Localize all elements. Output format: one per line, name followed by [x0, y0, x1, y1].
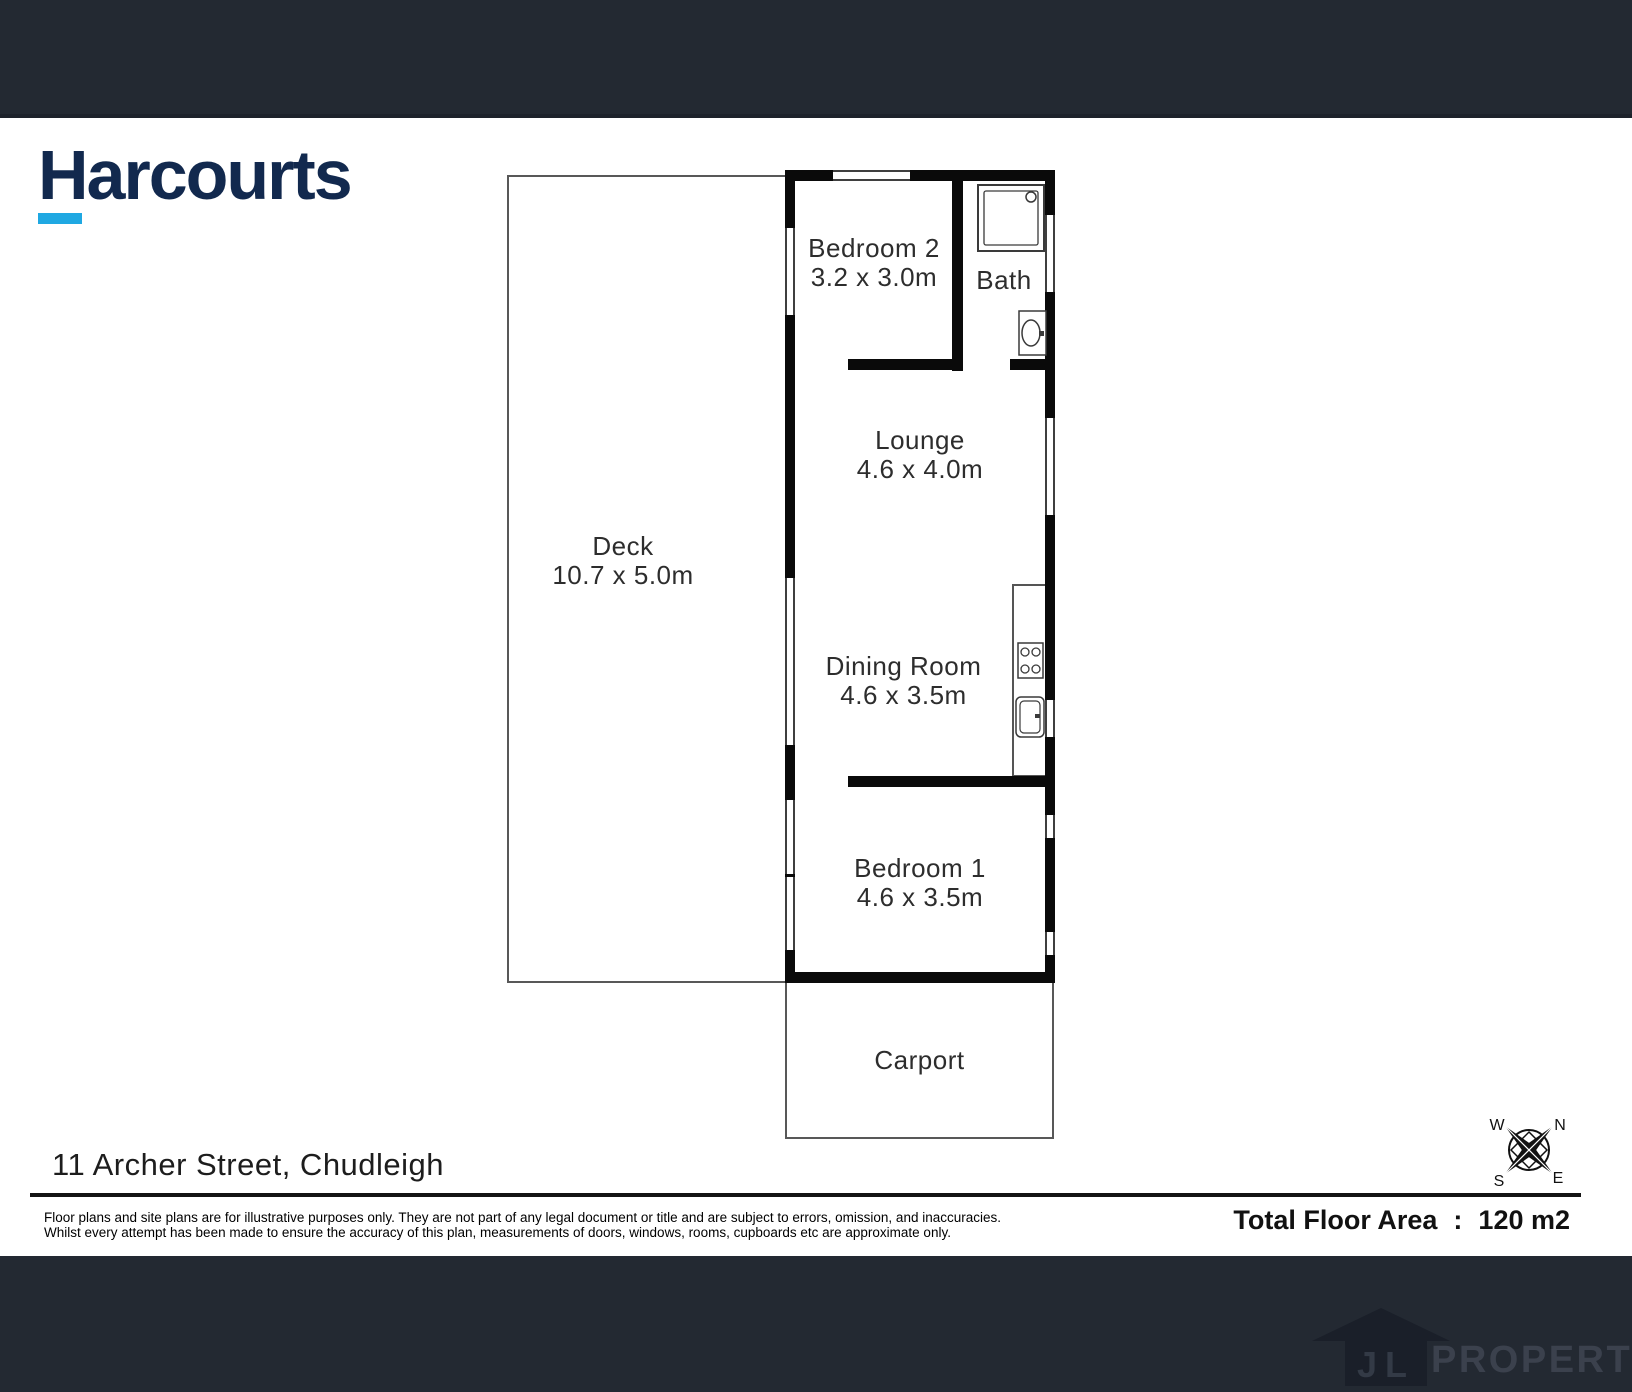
total-floor-area-label: Total Floor Area [1233, 1205, 1437, 1236]
top-band [0, 0, 1632, 118]
window-right-bath [1045, 215, 1055, 292]
room-label-deck: Deck 10.7 x 5.0m [507, 532, 739, 590]
footer-rule [30, 1193, 1581, 1197]
window-top-bedroom2 [833, 170, 910, 181]
window-right-bedroom1-b [1045, 932, 1055, 955]
disclaimer-line-1: Floor plans and site plans are for illus… [44, 1210, 1001, 1225]
disclaimer-text: Floor plans and site plans are for illus… [44, 1210, 1001, 1240]
room-label-lounge: Lounge 4.6 x 4.0m [795, 426, 1045, 484]
harcourts-logo: Harcourts [38, 140, 351, 224]
toilet-icon [1019, 311, 1046, 355]
room-label-carport: Carport [785, 1046, 1054, 1075]
compass-south-label: S [1494, 1173, 1505, 1190]
wall-dining-bedroom1-divider [848, 776, 1055, 787]
room-dims: 10.7 x 5.0m [507, 561, 739, 590]
wall-exterior-bottom [785, 972, 1055, 983]
total-floor-area-value: 120 m2 [1478, 1205, 1570, 1236]
total-floor-area: Total Floor Area : 120 m2 [1233, 1205, 1570, 1236]
window-right-lounge [1045, 418, 1055, 515]
compass-east-label: E [1553, 1170, 1564, 1187]
harcourts-logo-underline [38, 213, 82, 224]
window-right-kitchen [1045, 700, 1055, 737]
room-name: Bedroom 1 [795, 854, 1045, 883]
room-name: Lounge [795, 426, 1045, 455]
bottom-band [0, 1256, 1632, 1392]
wall-bath-bottom [1010, 359, 1055, 370]
compass-west-label: W [1489, 1117, 1505, 1134]
window-left-bedroom1-b [785, 877, 795, 950]
window-left-lounge-door [785, 578, 795, 745]
compass-icon: W N S E [1489, 1117, 1565, 1190]
window-left-bedroom1-a [785, 800, 795, 874]
property-address: 11 Archer Street, Chudleigh [52, 1147, 444, 1183]
room-dims: 4.6 x 3.5m [795, 681, 1012, 710]
room-name: Dining Room [795, 652, 1012, 681]
room-name: Deck [507, 532, 739, 561]
room-dims: 3.2 x 3.0m [795, 263, 953, 292]
window-left-bedroom2 [785, 228, 795, 315]
floorplan-page: Harcourts Bedroom 2 3.2 x 3.0m Bath Loun… [0, 0, 1632, 1392]
wall-bedroom2-right [952, 181, 963, 371]
room-name: Bath [963, 266, 1045, 295]
room-name: Bedroom 2 [795, 234, 953, 263]
room-label-dining: Dining Room 4.6 x 3.5m [795, 652, 1012, 710]
wall-bedroom2-bottom [848, 359, 963, 370]
wall-exterior-top [785, 170, 1055, 181]
room-dims: 4.6 x 4.0m [795, 455, 1045, 484]
room-label-bedroom1: Bedroom 1 4.6 x 3.5m [795, 854, 1045, 912]
window-right-bedroom1-a [1045, 815, 1055, 838]
shower-icon [978, 185, 1044, 251]
room-label-bath: Bath [963, 266, 1045, 295]
room-dims: 4.6 x 3.5m [795, 883, 1045, 912]
kitchen-bench [1012, 584, 1045, 777]
harcourts-logo-text: Harcourts [38, 140, 351, 210]
room-name: Carport [785, 1046, 1054, 1075]
total-floor-area-separator: : [1453, 1205, 1462, 1236]
disclaimer-line-2: Whilst every attempt has been made to en… [44, 1225, 1001, 1240]
room-label-bedroom2: Bedroom 2 3.2 x 3.0m [795, 234, 953, 292]
compass-north-label: N [1554, 1117, 1566, 1134]
